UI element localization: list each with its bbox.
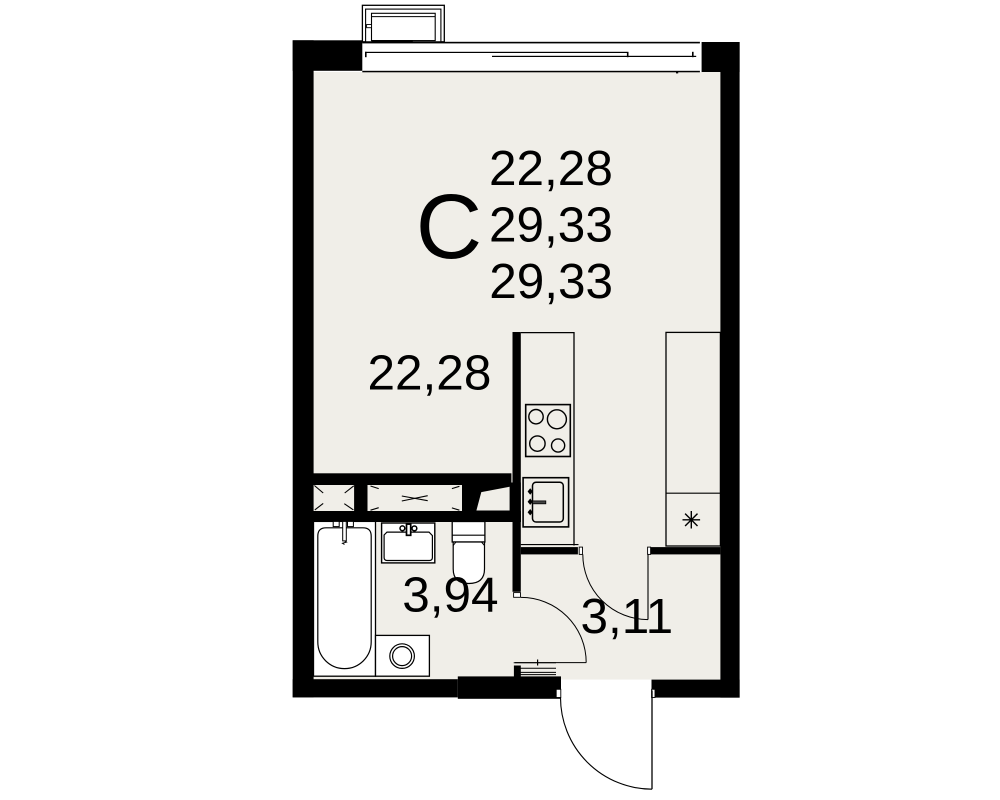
svg-text:3,11: 3,11	[581, 589, 674, 644]
svg-text:29,33: 29,33	[489, 254, 613, 309]
svg-text:3,94: 3,94	[402, 567, 498, 622]
svg-text:29,33: 29,33	[489, 197, 613, 252]
svg-text:С: С	[416, 176, 482, 278]
svg-text:22,28: 22,28	[489, 141, 613, 196]
svg-text:22,28: 22,28	[368, 346, 492, 401]
